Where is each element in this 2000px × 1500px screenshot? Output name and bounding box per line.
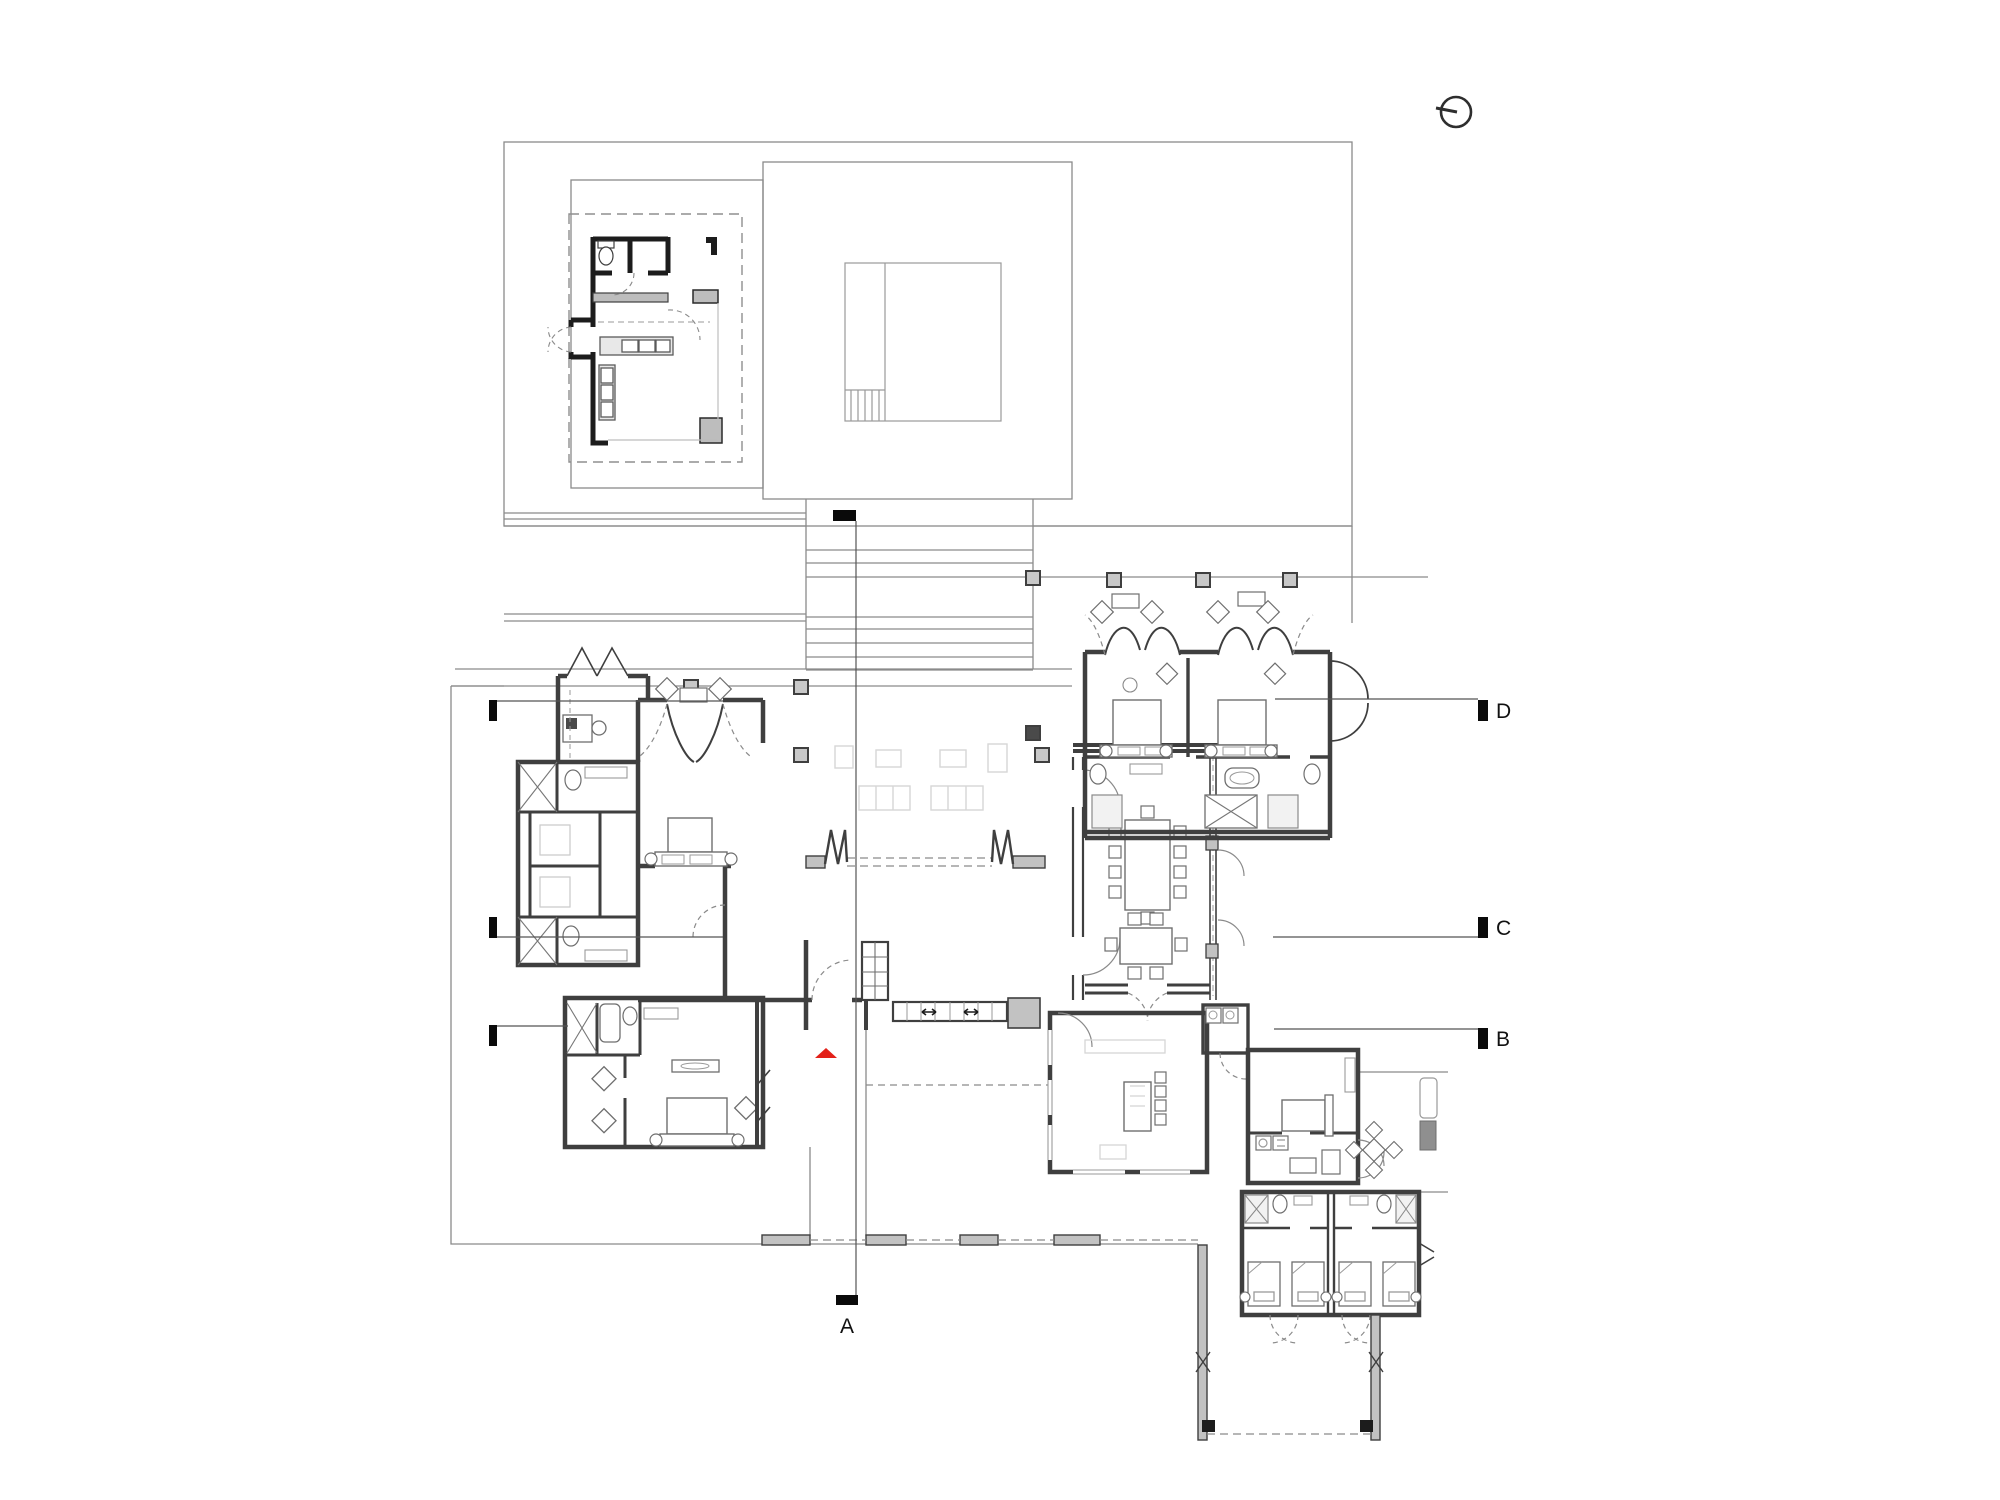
casita: [1248, 1050, 1384, 1183]
ne-east-doors: [1330, 661, 1368, 741]
ne-bed-2: [1205, 700, 1277, 757]
poolhouse-interior-wall: [593, 293, 668, 302]
dressing-door-arc: [693, 905, 725, 937]
washer: [1206, 1008, 1221, 1023]
patio-table: [1363, 1139, 1386, 1162]
great-room-stub-e: [1013, 856, 1045, 868]
study-chair: [592, 721, 606, 735]
master-sconce-r: [725, 853, 737, 865]
ne-chair-2: [1264, 663, 1285, 684]
roof-inner: [845, 263, 1001, 421]
casita-kitchenette: [1256, 1136, 1288, 1150]
closet-x-south: [518, 917, 557, 965]
great-room-ghost-furniture: [835, 744, 1007, 810]
casita-chair: [1322, 1150, 1340, 1174]
column-5: [1026, 571, 1040, 585]
family-windows: [1050, 1030, 1190, 1172]
lounger-outline: [1420, 1078, 1437, 1118]
wc-2: [563, 926, 579, 946]
ne-chair-1: [1156, 663, 1177, 684]
column-dark: [1026, 726, 1040, 740]
lounger-dark: [1420, 1121, 1436, 1150]
section-a-label: A: [840, 1315, 854, 1338]
west-porch-table: [680, 688, 707, 702]
master-suite: [638, 700, 763, 1000]
column-2: [794, 680, 808, 694]
sw-tub: [600, 1004, 620, 1042]
sw-headboard: [660, 1134, 734, 1146]
ne-fan: [1123, 678, 1137, 692]
great-room-open-wall: [847, 858, 992, 866]
center-hall: [763, 940, 1040, 1030]
column-6: [1107, 573, 1121, 587]
east-terrace-lines: [1033, 526, 1428, 623]
bunk-wc-2: [1377, 1195, 1391, 1213]
hall-pier: [1008, 998, 1040, 1028]
bunk-south-doors: [1270, 1315, 1370, 1343]
ne-porch-chair-1: [1091, 601, 1114, 624]
entry-recess-walls: [757, 1000, 866, 1147]
study-bifold-doors: [567, 648, 628, 676]
great-room: [806, 744, 1045, 868]
porch-columns: [684, 571, 1297, 762]
sw-chair-1: [592, 1067, 616, 1091]
roof-inner-rect: [845, 263, 1001, 421]
dining-table-square: [1120, 928, 1172, 964]
carport-foot-e: [1360, 1420, 1373, 1432]
poolhouse-post-se: [700, 418, 722, 443]
casita-bed: [1282, 1100, 1325, 1131]
casita-closet: [1345, 1058, 1355, 1092]
section-b-label: B: [1496, 1028, 1510, 1051]
laundry-room: [1203, 1005, 1248, 1079]
floor-plan-svg: D C B A: [0, 0, 2000, 1500]
laundry-door-arc: [1220, 1053, 1246, 1079]
section-b-bar-left: [489, 1025, 497, 1046]
ne-porch-chair-2: [1141, 601, 1164, 624]
sw-tv-console: [672, 1060, 719, 1072]
master-sconce-l: [645, 853, 657, 865]
counter-ghost: [1085, 1040, 1165, 1053]
entry-recess: [757, 1000, 866, 1147]
west-porch-chair-1: [656, 678, 679, 701]
north-arrow-icon: [1436, 97, 1471, 127]
family-wing: [1048, 1013, 1207, 1174]
sw-vanity: [644, 1008, 678, 1019]
vanity-2: [585, 950, 627, 961]
casita-headboard: [1325, 1095, 1333, 1136]
ne-porch-chair-3: [1207, 601, 1230, 624]
carport-west-wall: [1198, 1245, 1207, 1440]
west-terrace-steps: [504, 513, 806, 621]
family-window-lines: [1048, 1030, 1190, 1174]
ne-bed-1: [1100, 700, 1172, 757]
sw-suite: [565, 998, 770, 1147]
master-bed: [668, 818, 712, 852]
section-markers: D C B A: [489, 510, 1511, 1338]
sw-chair-2: [592, 1109, 616, 1133]
section-c-bar-left: [489, 917, 497, 938]
poolhouse-toilet: [598, 241, 614, 265]
carport-foot-w: [1202, 1420, 1215, 1432]
grand-stair: [806, 499, 1033, 670]
sw-closet-x: [567, 1003, 597, 1053]
section-b-bar-right: [1478, 1028, 1488, 1049]
north-tick: [1436, 108, 1457, 112]
section-c-label: C: [1496, 917, 1511, 940]
north-porch-edge: [451, 669, 1072, 686]
ne-shower-2: [1268, 795, 1298, 828]
dryer: [1223, 1008, 1238, 1023]
ne-vanity-1: [1130, 764, 1162, 774]
study-computer: [566, 718, 577, 729]
ne-butterfly-doors: [1085, 615, 1313, 655]
section-a-bar-bottom: [836, 1295, 858, 1305]
dining-west-wall: [1073, 757, 1083, 1000]
folding-door-symbol-w: [825, 830, 847, 864]
section-a-bar-top: [833, 510, 856, 521]
section-c-bar-right: [1478, 917, 1488, 938]
shower-shelf-2: [540, 877, 570, 907]
column-3: [794, 748, 808, 762]
sw-bed: [667, 1098, 727, 1134]
ne-shower-1: [1092, 795, 1122, 828]
west-wing-study: [558, 648, 648, 762]
shower-shelf-1: [540, 825, 570, 855]
column-8: [1283, 573, 1297, 587]
upper-terrace-outline: [504, 142, 1352, 526]
bunk-wc-1: [1273, 1195, 1287, 1213]
ne-porch-table-2: [1238, 592, 1265, 606]
family-door-arc: [1058, 1013, 1092, 1047]
ne-guest-wing: [1085, 615, 1368, 838]
folding-door-symbol-e: [992, 830, 1013, 864]
poolhouse-post-e: [693, 290, 718, 303]
bunk-beds: [1248, 1262, 1415, 1306]
island-stools: [1155, 1072, 1166, 1125]
dining-south-wall: [1085, 985, 1210, 993]
ne-wc-2: [1304, 764, 1320, 784]
master-butterfly-doors: [640, 704, 750, 762]
bunk-rooms: [1240, 1192, 1434, 1343]
column-7: [1196, 573, 1210, 587]
stair-upper-treads: [806, 550, 1033, 577]
wc-1: [565, 770, 581, 790]
sw-suite-outline: [565, 998, 763, 1147]
bunk-sink-2: [1350, 1196, 1368, 1205]
section-d-bar-left: [489, 700, 497, 721]
entry-door-arc: [812, 960, 852, 1000]
great-room-stub-w: [806, 856, 825, 868]
dining-door-arcs: [1218, 850, 1244, 946]
bunk-sink-1: [1294, 1196, 1312, 1205]
ne-wc-1: [1090, 764, 1106, 784]
entry-walk-edges: [810, 1030, 866, 1236]
counter-ghost-2: [1100, 1145, 1126, 1159]
sw-sconce-l: [650, 1134, 662, 1146]
ne-porch-table-1: [1112, 594, 1139, 608]
closet-x-north: [518, 762, 557, 812]
poolhouse-kitchenette: [599, 337, 673, 420]
floor-plan-page: D C B A: [0, 0, 2000, 1500]
casita-table: [1290, 1158, 1316, 1173]
sw-wc: [623, 1007, 637, 1025]
section-d-label: D: [1496, 700, 1511, 723]
west-wing-baths: [518, 762, 638, 965]
poolhouse-inset: [548, 214, 742, 462]
dining-south-doors: [1128, 993, 1167, 1021]
sw-chair-3: [735, 1097, 758, 1120]
poolhouse-post-ne: [706, 237, 717, 255]
sw-sconce-r: [732, 1134, 744, 1146]
dining-wing: [1073, 745, 1244, 1021]
west-porch-chair-2: [709, 678, 732, 701]
main-roof-outline: [763, 162, 1072, 499]
vanity-1: [585, 767, 627, 778]
section-d-bar-right: [1478, 700, 1488, 721]
stair-lower-treads: [806, 617, 1033, 670]
entry-arrow-icon: [815, 1048, 837, 1058]
roof-stair-hatch: [845, 390, 885, 421]
dining-pocket-2: [1206, 944, 1218, 958]
column-4: [1035, 748, 1049, 762]
